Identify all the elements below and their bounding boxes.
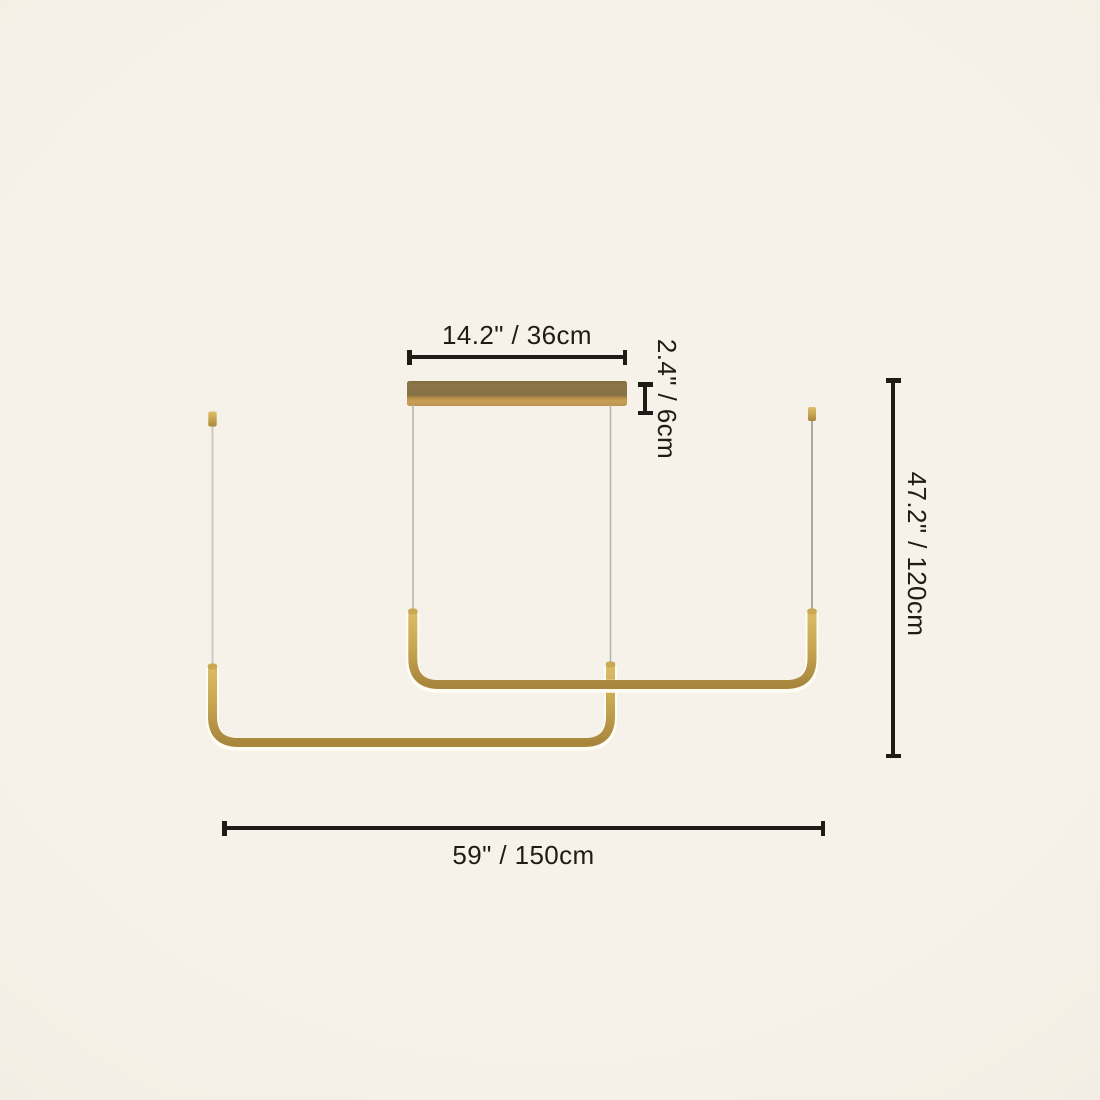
dimension-line-drop-height (891, 378, 895, 758)
dimension-label-drop-height: 47.2" / 120cm (902, 464, 932, 644)
pendant-light-illustration (0, 0, 1100, 1100)
dimension-line-canopy-width (407, 355, 627, 359)
ceiling-cap-right (808, 407, 816, 421)
dimension-label-canopy-width: 14.2" / 36cm (397, 320, 637, 351)
dimension-line-total-width (222, 826, 825, 830)
ceiling-cap-left (208, 412, 216, 427)
tube-end-cap-front-left (208, 664, 218, 670)
ceiling-canopy (407, 381, 627, 406)
dimension-label-total-width: 59" / 150cm (222, 840, 825, 871)
tube-end-cap-back-left (408, 609, 418, 615)
dimension-label-canopy-depth: 2.4" / 6cm (653, 333, 681, 465)
tube-end-cap-back-right (807, 609, 817, 615)
product-dimension-diagram: 14.2" / 36cm 2.4" / 6cm 47.2" / 120cm 59… (0, 0, 1100, 1100)
tube-end-cap-front-right (606, 662, 616, 668)
dimension-line-canopy-depth (643, 382, 647, 415)
